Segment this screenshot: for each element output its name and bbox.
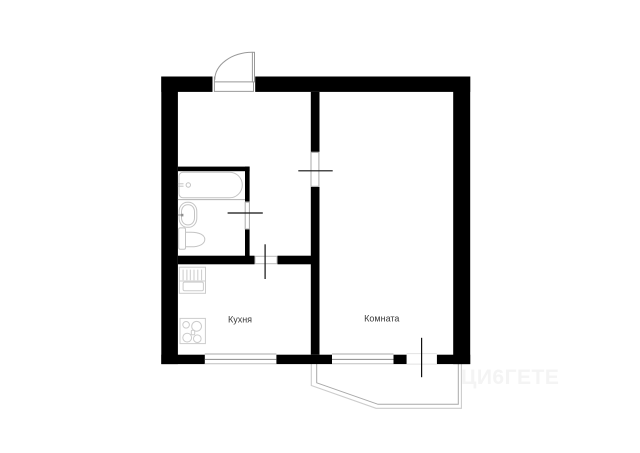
svg-text:Комната: Комната: [364, 314, 399, 324]
svg-text:Кухня: Кухня: [228, 314, 252, 324]
svg-text:ЦИ6ГЕТЕ: ЦИ6ГЕТЕ: [461, 366, 559, 389]
